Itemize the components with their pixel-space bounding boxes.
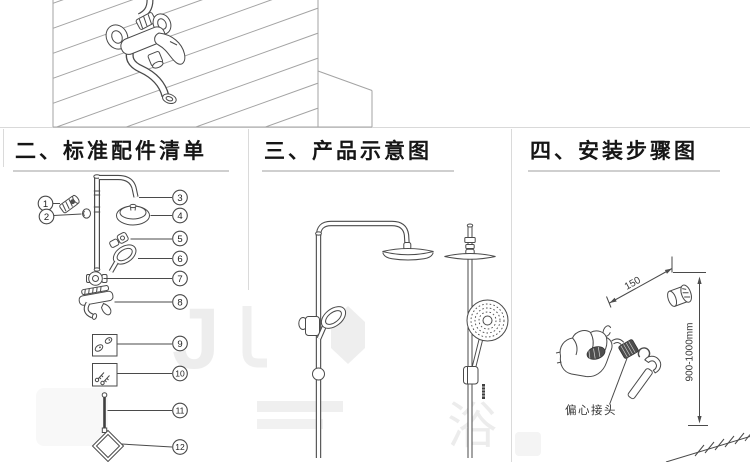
product-schematic-diagram: [248, 165, 511, 462]
part-badge-4: 4: [173, 208, 188, 223]
tiled-wall-panel: [40, 0, 372, 128]
svg-text:9: 9: [177, 339, 182, 350]
svg-text:12: 12: [175, 442, 185, 452]
wall-mounted-faucet-drawing: [102, 0, 185, 105]
part-badge-9: 9: [173, 336, 188, 351]
shower-column-front-view: [445, 224, 509, 458]
section-title-install-steps: 四、安装步骤图: [528, 135, 720, 172]
svg-text:8: 8: [177, 297, 182, 308]
part-badge-7: 7: [173, 271, 188, 286]
part-badge-8: 8: [173, 295, 188, 310]
section-title-product-diagram: 三、产品示意图: [262, 135, 454, 172]
svg-text:6: 6: [177, 254, 182, 265]
callout-leader-lines: [53, 198, 173, 448]
parts-exploded-diagram: 1 2 3 4 5 6 7 8 9 10 11 12: [0, 165, 248, 462]
section-title-parts-list: 二、标准配件清单: [13, 135, 229, 172]
installation-diagram: 150 900-1000mm: [511, 165, 750, 462]
part-badge-6: 6: [173, 251, 188, 266]
wrench-drawing: [622, 353, 664, 402]
part-badge-2: 2: [39, 209, 54, 224]
dim-150-label: 150: [623, 275, 643, 293]
svg-text:11: 11: [176, 406, 185, 416]
part-badge-5: 5: [173, 231, 188, 246]
part-badge-12: 12: [173, 440, 188, 455]
floor-hatching: [666, 433, 750, 462]
svg-text:7: 7: [177, 274, 182, 285]
dim-900-1000-label: 900-1000mm: [685, 323, 696, 382]
svg-text:5: 5: [177, 234, 182, 245]
left-edge-stub: [3, 129, 4, 167]
part-badge-10: 10: [173, 366, 188, 381]
shower-column-side-view: [299, 224, 434, 459]
hand-installing-connector-drawing: [556, 325, 664, 402]
exploded-parts-drawing: [59, 175, 150, 462]
svg-text:2: 2: [44, 212, 49, 223]
top-faucet-figure: [0, 0, 750, 128]
connector-label-text: 偏心接头: [565, 403, 617, 417]
svg-text:10: 10: [175, 369, 185, 379]
svg-text:4: 4: [177, 211, 182, 222]
svg-text:3: 3: [177, 193, 182, 204]
part-badge-11: 11: [173, 403, 188, 418]
eccentric-connector-drawing: [665, 284, 693, 309]
part-badge-3: 3: [173, 190, 188, 205]
svg-text:1: 1: [43, 199, 48, 210]
part-number-badges: 1 2 3 4 5 6 7 8 9 10 11 12: [38, 190, 187, 454]
part-badge-1: 1: [38, 196, 53, 211]
instruction-sheet: J 浴: [0, 0, 750, 462]
